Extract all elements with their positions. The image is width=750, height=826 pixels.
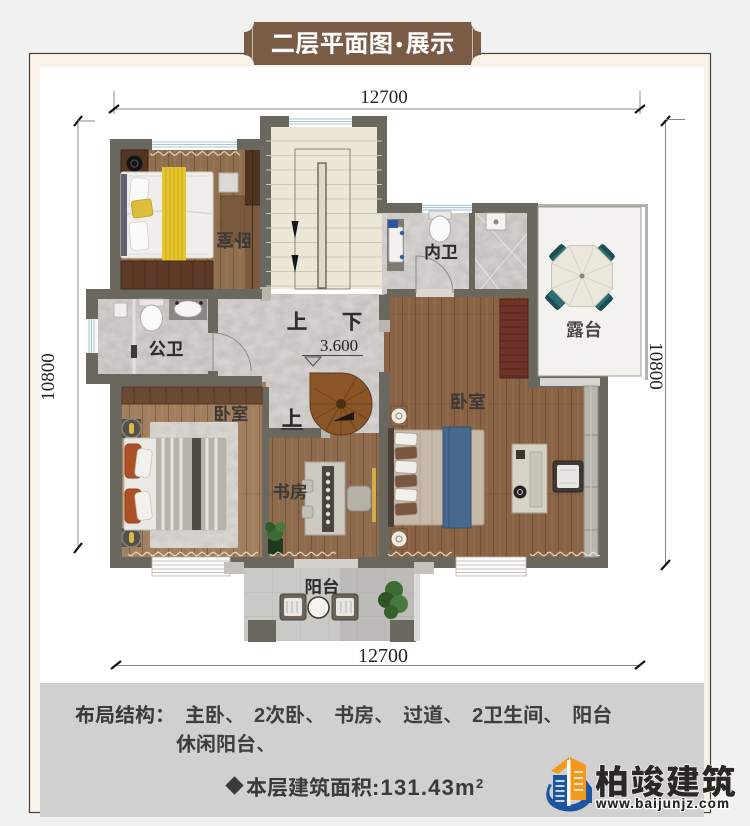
- svg-text:www.baijunjz.com: www.baijunjz.com: [595, 796, 730, 811]
- svg-text:12700: 12700: [358, 645, 408, 667]
- svg-text:10800: 10800: [645, 342, 666, 390]
- svg-text:2: 2: [476, 776, 483, 791]
- svg-text::131.43m: :131.43m: [372, 775, 476, 800]
- svg-text:10800: 10800: [38, 353, 59, 401]
- svg-text:2: 2: [472, 705, 483, 727]
- svg-text:12700: 12700: [360, 87, 408, 108]
- svg-text:3.600: 3.600: [320, 336, 358, 355]
- svg-text:2: 2: [254, 705, 265, 727]
